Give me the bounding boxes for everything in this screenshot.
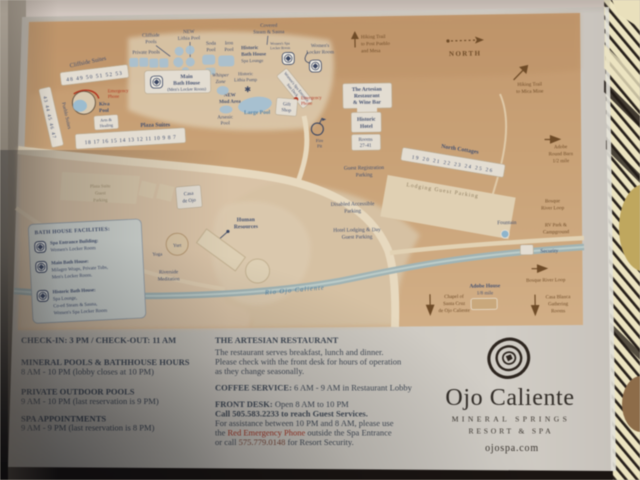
- svg-text:Steam & Sauna: Steam & Sauna: [253, 30, 285, 36]
- svg-text:to Mica Mine: to Mica Mine: [516, 89, 544, 94]
- svg-text:Pool: Pool: [99, 108, 109, 114]
- svg-text:Pool: Pool: [224, 48, 234, 53]
- svg-text:Pool: Pool: [206, 48, 216, 53]
- svg-text:Soda: Soda: [206, 42, 217, 47]
- svg-text:Restaurant: Restaurant: [354, 93, 380, 99]
- svg-text:Lithia Pool: Lithia Pool: [178, 36, 201, 41]
- svg-text:Historic: Historic: [357, 117, 376, 123]
- svg-text:Kiva: Kiva: [99, 101, 110, 107]
- svg-text:Cliffside: Cliffside: [142, 33, 160, 38]
- svg-text:Locker Room: Locker Room: [306, 50, 334, 55]
- svg-text:Covered: Covered: [260, 24, 278, 29]
- svg-text:The Artesian: The Artesian: [352, 87, 382, 93]
- svg-text:Main: Main: [180, 74, 192, 80]
- svg-text:Lithia Pump: Lithia Pump: [234, 77, 258, 82]
- svg-text:(Men's Locker Room): (Men's Locker Room): [167, 86, 206, 92]
- svg-text:NORTH: NORTH: [449, 49, 482, 58]
- svg-text:Gift: Gift: [283, 102, 292, 108]
- svg-text:Mud Area: Mud Area: [219, 100, 241, 105]
- svg-text:Whisper: Whisper: [212, 73, 229, 78]
- svg-text:and Mesa: and Mesa: [361, 49, 381, 54]
- svg-text:Shop: Shop: [281, 108, 292, 114]
- svg-text:Phone: Phone: [108, 94, 120, 99]
- svg-text:Iron: Iron: [225, 41, 234, 46]
- svg-text:Locker Room: Locker Room: [270, 46, 290, 50]
- svg-text:Hiking Trail: Hiking Trail: [361, 35, 386, 40]
- svg-text:Healing: Healing: [100, 122, 114, 128]
- svg-text:Hotel: Hotel: [360, 124, 373, 130]
- svg-text:Plaza Suites: Plaza Suites: [140, 122, 171, 128]
- svg-text:to Post Pueblo: to Post Pueblo: [361, 42, 390, 47]
- svg-text:Pool: Pool: [221, 121, 231, 126]
- svg-text:Pools: Pools: [145, 40, 156, 45]
- svg-text:NEW: NEW: [183, 30, 195, 35]
- svg-text:Women's: Women's: [311, 44, 329, 49]
- svg-text:Historic: Historic: [238, 71, 253, 76]
- svg-text:Emergency: Emergency: [108, 88, 130, 93]
- svg-text:Large Pool: Large Pool: [244, 110, 271, 116]
- svg-text:Private Pools: Private Pools: [132, 50, 160, 56]
- svg-text:✱: ✱: [244, 85, 251, 94]
- svg-text:Hiking Trail: Hiking Trail: [517, 82, 542, 87]
- svg-text:Emergency: Emergency: [301, 95, 323, 100]
- svg-text:Spa Lounge: Spa Lounge: [241, 58, 263, 63]
- svg-text:Zone: Zone: [216, 80, 227, 85]
- svg-text:Phone: Phone: [301, 101, 313, 106]
- svg-text:Historic: Historic: [241, 46, 259, 51]
- svg-text:Arsenic: Arsenic: [217, 115, 233, 120]
